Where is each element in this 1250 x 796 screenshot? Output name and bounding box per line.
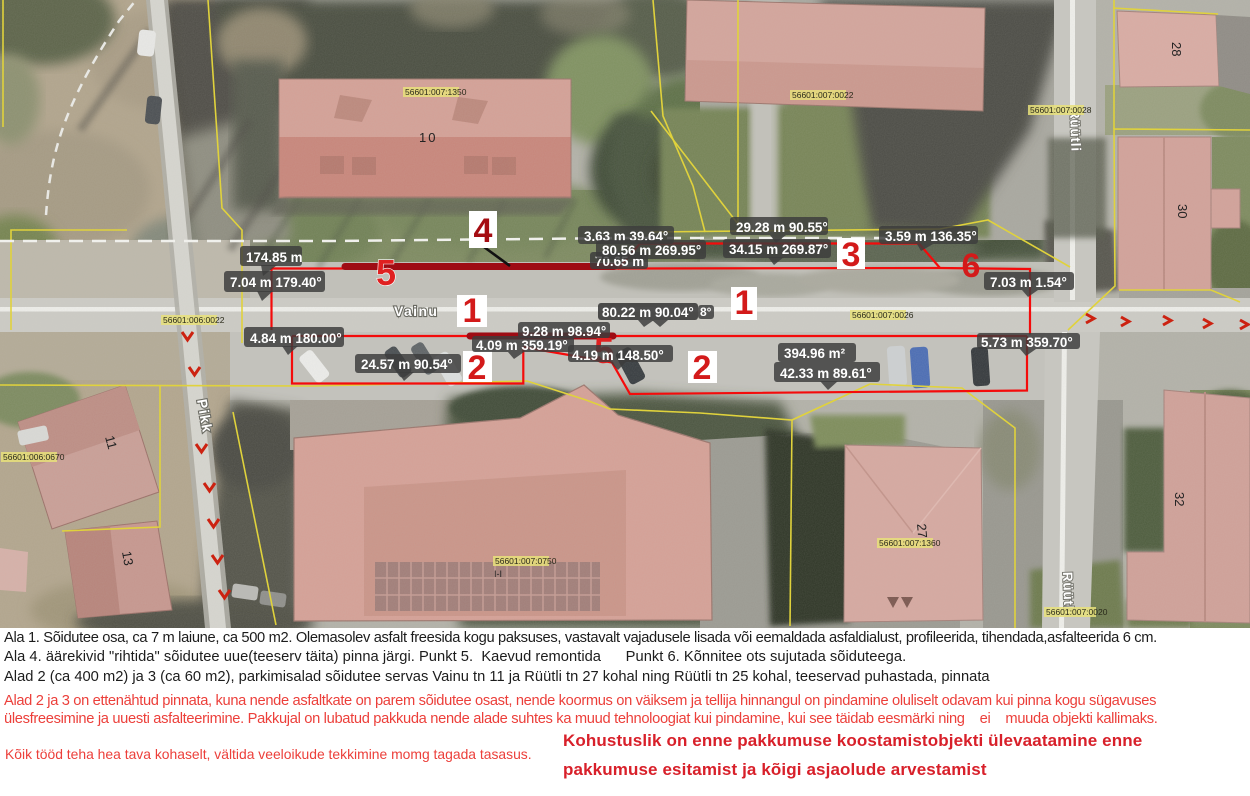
svg-text:56601:007:1350: 56601:007:1350 [405, 87, 467, 97]
svg-text:28: 28 [1169, 42, 1184, 56]
svg-text:29.28 m 90.55°: 29.28 m 90.55° [736, 220, 828, 235]
svg-text:1: 1 [735, 284, 754, 322]
svg-text:3.59 m 136.35°: 3.59 m 136.35° [885, 229, 977, 244]
svg-text:56601:007:1360: 56601:007:1360 [879, 538, 941, 548]
svg-text:32: 32 [1172, 492, 1187, 506]
svg-text:Rüütli: Rüütli [1067, 109, 1083, 153]
svg-text:174.85 m: 174.85 m [246, 250, 303, 265]
svg-text:I-I: I-I [494, 569, 502, 579]
svg-text:56601:006:0670: 56601:006:0670 [3, 452, 65, 462]
svg-text:42.33 m 89.61°: 42.33 m 89.61° [780, 366, 872, 381]
svg-text:5: 5 [376, 252, 396, 293]
svg-text:3: 3 [842, 236, 861, 274]
svg-text:7.03 m 1.54°: 7.03 m 1.54° [990, 275, 1067, 290]
svg-text:4.84 m 180.00°: 4.84 m 180.00° [250, 331, 342, 346]
svg-text:56601:007:0020: 56601:007:0020 [1046, 607, 1108, 617]
svg-text:1: 1 [463, 292, 482, 330]
svg-text:80.56 m 269.95°: 80.56 m 269.95° [602, 243, 701, 258]
svg-text:10: 10 [419, 130, 437, 145]
svg-text:394.96 m²: 394.96 m² [784, 346, 846, 361]
svg-text:4.19 m 148.50°: 4.19 m 148.50° [572, 348, 664, 363]
svg-text:34.15 m 269.87°: 34.15 m 269.87° [729, 242, 828, 257]
svg-text:5.73 m 359.70°: 5.73 m 359.70° [981, 335, 1073, 350]
svg-text:56601:006:0022: 56601:006:0022 [163, 315, 225, 325]
svg-text:27: 27 [914, 523, 930, 539]
svg-text:56601:007:0026: 56601:007:0026 [852, 310, 914, 320]
svg-text:7.04 m 179.40°: 7.04 m 179.40° [230, 275, 322, 290]
svg-text:4.09 m 359.19°: 4.09 m 359.19° [476, 338, 568, 353]
svg-text:80.22 m 90.04°: 80.22 m 90.04° [602, 305, 694, 320]
svg-text:30: 30 [1175, 204, 1190, 218]
svg-text:24.57 m 90.54°: 24.57 m 90.54° [361, 357, 453, 372]
svg-text:13: 13 [119, 550, 136, 567]
svg-text:Vainu: Vainu [394, 303, 438, 319]
svg-text:56601:007:0750: 56601:007:0750 [495, 556, 557, 566]
svg-text:4: 4 [474, 212, 493, 250]
svg-text:2: 2 [693, 349, 712, 387]
svg-text:56601:007:0022: 56601:007:0022 [792, 90, 854, 100]
svg-text:2: 2 [468, 349, 487, 387]
svg-text:6: 6 [962, 247, 981, 285]
svg-text:56601:007:0028: 56601:007:0028 [1030, 105, 1092, 115]
svg-text:8°: 8° [700, 305, 712, 319]
